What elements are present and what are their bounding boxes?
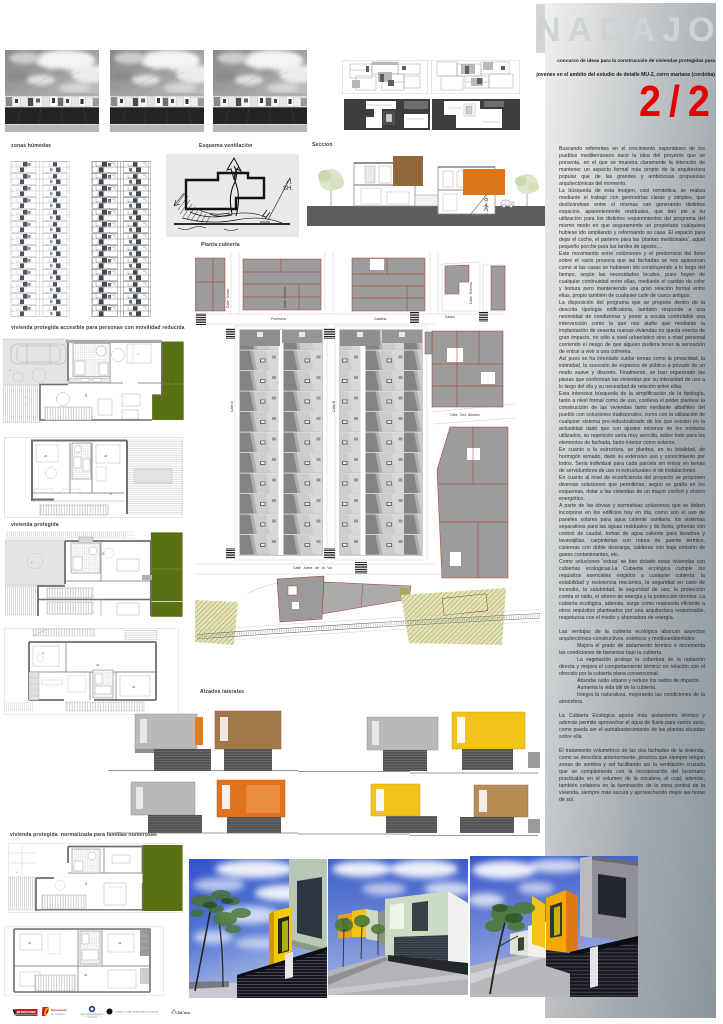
svg-text:sc: sc [84, 881, 88, 885]
svg-text:Calle Toro Árboles: Calle Toro Árboles [450, 413, 480, 417]
svg-text:d2: d2 [104, 454, 108, 458]
svg-text:Catalina: Catalina [374, 317, 387, 321]
svg-text:Diputación: Diputación [51, 1008, 67, 1012]
svg-text:DE CÓRDOBA: DE CÓRDOBA [87, 1016, 96, 1019]
svg-text:e: e [109, 493, 113, 495]
svg-text:Calle Camino: Calle Camino [283, 287, 287, 308]
svg-text:Calle Nuevo: Calle Nuevo [226, 288, 230, 308]
svg-text:d3: d3 [132, 685, 136, 689]
svg-text:Calle Acera de la Via: Calle Acera de la Via [293, 566, 332, 570]
svg-text:d1: d1 [28, 941, 32, 945]
svg-text:d1: d1 [44, 454, 48, 458]
svg-text:laCasa: laCasa [178, 1010, 191, 1015]
svg-text:d2: d2 [96, 663, 100, 667]
svg-text:wc: wc [84, 393, 88, 397]
svg-text:Calle A: Calle A [230, 401, 234, 412]
svg-text:Profesora: Profesora [271, 317, 286, 321]
svg-text:Calle B: Calle B [332, 400, 336, 412]
svg-text:Calle Guerrita: Calle Guerrita [469, 282, 473, 304]
svg-text:d3: d3 [84, 973, 88, 977]
svg-text:provicosa: provicosa [17, 1009, 37, 1014]
svg-text:SH.: SH. [283, 186, 293, 192]
svg-text:COLEGIO OFICIAL DE ARQUITECTOS: COLEGIO OFICIAL DE ARQUITECTOS [80, 1013, 104, 1016]
svg-text:CONSEJO VITUAL DE ARQUITECTOS: CONSEJO VITUAL DE ARQUITECTOS DE CÓRDOBA [115, 1011, 159, 1014]
svg-text:d2: d2 [118, 941, 122, 945]
svg-text:de Córdoba: de Córdoba [51, 1012, 65, 1016]
svg-text:sc: sc [101, 551, 105, 555]
svg-text:Castro: Castro [445, 315, 455, 319]
